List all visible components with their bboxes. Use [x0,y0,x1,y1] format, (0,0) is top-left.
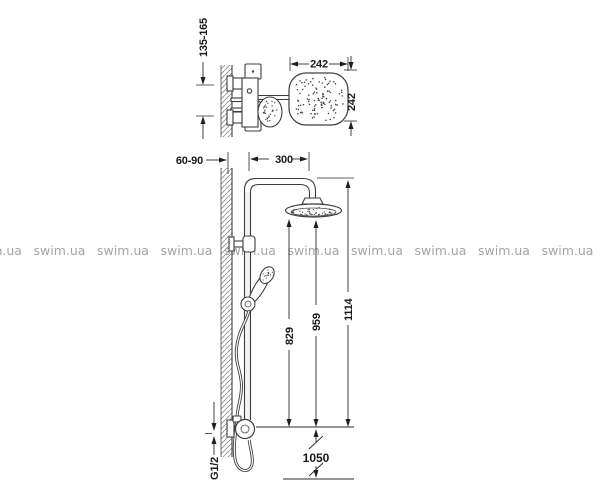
watermark-text: swim.ua [161,243,213,258]
watermark-text: swim.ua [415,243,467,258]
lower-inlet-flange [227,110,233,125]
watermark-text: swim.ua [542,243,594,258]
dim-wall-distance-label: 60-90 [176,155,203,167]
watermark-text: swim.ua [478,243,530,258]
valve-flange [227,420,234,437]
watermark-text: swim.ua [288,243,340,258]
dim-mount-spacing-label: 135-165 [198,18,210,57]
dim-thread-size: G1/2 [205,402,221,480]
handshower-top-view [258,97,282,127]
shower-technical-drawing: swim.ua swim.ua swim.ua swim.ua swim.ua … [0,0,600,500]
upper-inlet-nut [233,78,242,89]
drawing-canvas: swim.ua swim.ua swim.ua swim.ua swim.ua … [0,0,600,500]
dim-head-depth-label: 242 [346,93,358,111]
valve-body [236,420,255,439]
dim-mount-spacing: 135-165 [196,18,214,139]
dim-head-width: 242 [290,57,348,71]
dim-handshower-height-label: 829 [284,327,296,345]
top-plate-screw [252,70,254,72]
wall-side-view [221,168,232,457]
dim-supply-rise: 1050 [303,429,330,478]
bracket-flange [229,237,234,251]
dim-head-clearance-label: 959 [311,313,323,331]
dim-arm-reach-label: 300 [275,154,293,166]
cartridge-screw [247,89,251,93]
watermark-text: swim.ua [34,243,86,258]
slider-knob [241,297,255,311]
dim-total-height-label: 1114 [343,297,355,321]
showerhead-side-view [286,198,342,217]
bracket-clamp [243,236,255,252]
dim-wall-distance: 60-90 [176,152,228,174]
upper-inlet-flange [227,76,233,91]
dim-thread-size-label: G1/2 [209,457,221,480]
lower-inlet-nut [233,112,242,123]
dim-supply-rise-label: 1050 [303,451,330,465]
mixer-body [242,78,258,127]
showerhead-top-view [289,73,348,125]
column-inner-line [251,185,310,421]
watermark-row: swim.ua swim.ua swim.ua swim.ua swim.ua … [0,243,593,258]
dim-head-width-label: 242 [310,59,328,71]
dim-arm-reach: 300 [249,152,309,171]
watermark-text: swim.ua [97,243,149,258]
head-connector-cone [302,198,323,204]
watermark-text: swim.ua [0,243,22,258]
handshower-face [258,97,282,127]
watermark-text: swim.ua [351,243,403,258]
dim-head-depth: 242 [344,56,358,136]
